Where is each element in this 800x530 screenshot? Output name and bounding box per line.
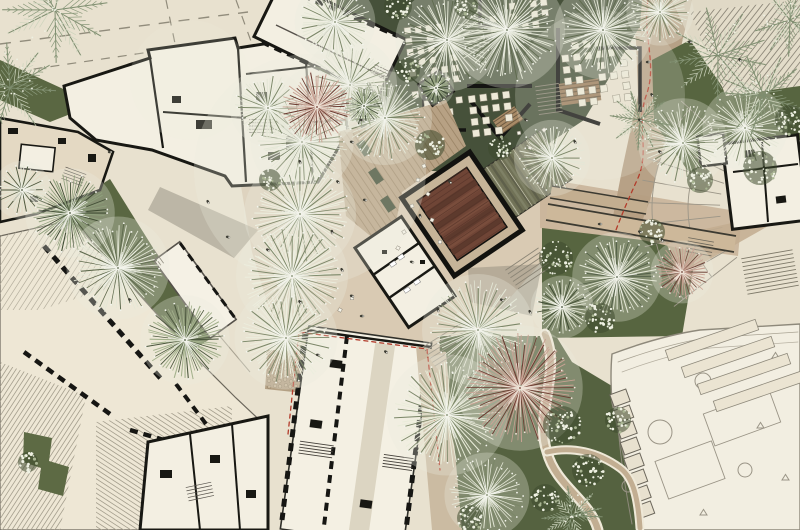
burst — [66, 216, 169, 319]
core — [160, 470, 172, 478]
shrub — [543, 406, 581, 444]
core — [360, 499, 373, 509]
red-tree — [651, 241, 714, 304]
halo — [130, 20, 250, 140]
burst — [418, 70, 454, 106]
core — [210, 455, 220, 463]
architectural-site-plan-drawing — [0, 0, 800, 530]
shrub — [457, 505, 483, 530]
burst — [514, 120, 590, 196]
core — [310, 419, 323, 429]
core — [58, 138, 66, 144]
core — [420, 260, 425, 264]
core — [8, 128, 18, 134]
shrub — [539, 241, 573, 275]
shrub — [687, 167, 713, 193]
site-plan-stage — [0, 0, 800, 530]
shrub — [415, 130, 445, 160]
red-tree — [277, 67, 358, 148]
burst — [140, 295, 230, 385]
core — [88, 154, 96, 162]
burst — [234, 286, 337, 389]
core — [776, 195, 787, 203]
core — [246, 490, 256, 498]
